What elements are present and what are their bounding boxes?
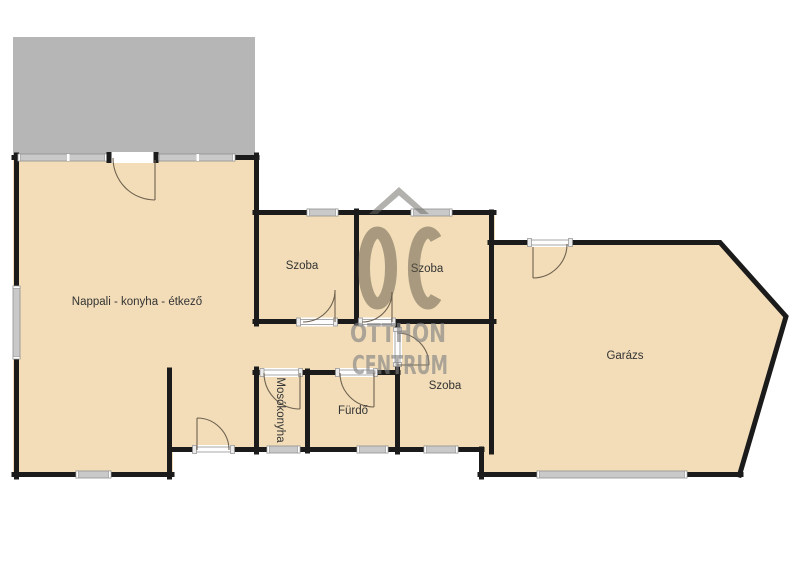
floorplan-svg: Nappali - konyha - étkező Szoba Szoba Sz…: [0, 0, 800, 565]
window-bath-bottom: [357, 446, 388, 453]
window-terrace-left: [18, 154, 107, 161]
window-living-bottom: [76, 471, 111, 478]
watermark-line1: OTTHON: [350, 319, 446, 349]
window-garage-bottom: [537, 471, 687, 478]
window-living-left: [13, 286, 20, 359]
window-bedroom1-top: [307, 209, 338, 216]
label-garage: Garázs: [606, 350, 643, 362]
terrace-area: [13, 37, 255, 156]
label-bathroom: Fürdő: [338, 405, 368, 417]
label-living-kitchen-dining: Nappali - konyha - étkező: [72, 296, 202, 308]
label-bedroom-1: Szoba: [286, 260, 319, 272]
watermark-line2: CENTRUM: [352, 351, 448, 381]
window-laundry-bottom: [267, 446, 300, 453]
label-bedroom-3: Szoba: [429, 380, 462, 392]
window-bedroom3-bottom: [424, 446, 458, 453]
watermark-roof-icon: [369, 187, 429, 214]
label-laundry: Mosókonyha: [274, 377, 286, 443]
window-terrace-right: [157, 154, 235, 161]
floorplan-image: Nappali - konyha - étkező Szoba Szoba Sz…: [0, 0, 800, 565]
floor-areas: [13, 155, 788, 477]
